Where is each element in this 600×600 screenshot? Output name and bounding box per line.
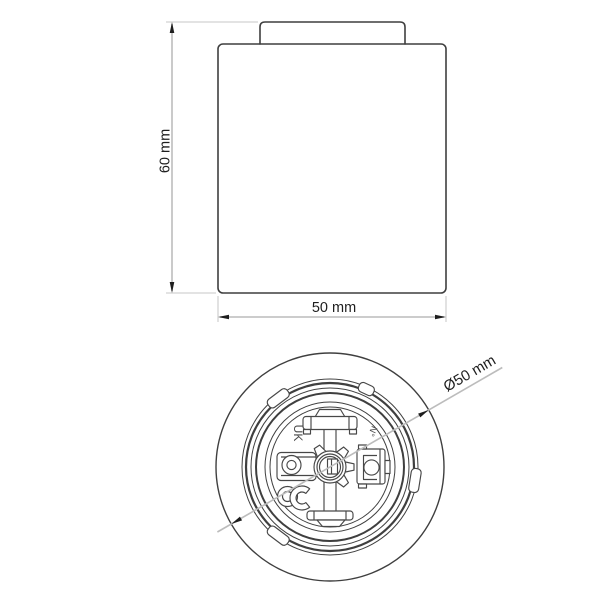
side-view: 60 mm 50 mm [158,22,447,322]
bottom-bracket-tab [317,520,345,527]
uk-marking: UK [291,425,305,442]
right-terminal-block [357,449,385,484]
arrow-lower-left-icon [231,517,242,524]
hub-tooth-right [346,462,355,472]
lamp-holder-drawing: 60 mm 50 mm [0,0,600,600]
center-contact-slot [328,459,338,474]
body-outline [218,44,446,293]
top-bracket-tab [315,410,345,418]
width-dimension: 50 mm [218,296,446,322]
right-terminal-nub [385,461,390,474]
cap-outline [260,22,405,44]
arrow-left-icon [218,315,229,320]
stem-bottom [324,482,336,512]
left-screw-outer [282,456,301,475]
stem-top [324,429,336,452]
arrow-right-icon [435,315,446,320]
height-dimension-label: 60 mm [158,129,174,173]
technical-drawing-page: 60 mm 50 mm [0,0,600,600]
height-dimension: 60 mm [158,22,259,293]
ring-tab-upper-right [357,381,376,397]
width-dimension-label: 50 mm [312,300,356,316]
arrow-up-icon [170,22,175,33]
right-terminal-tab-bottom [359,484,367,488]
diameter-dimension-line [217,368,502,533]
arrow-down-icon [170,282,175,293]
ring-tab-right [408,468,422,493]
crescent-clip [290,486,310,510]
number-marking: N° [366,425,380,439]
arrow-upper-right-icon [418,410,429,417]
top-bracket-foot-right [350,430,357,435]
